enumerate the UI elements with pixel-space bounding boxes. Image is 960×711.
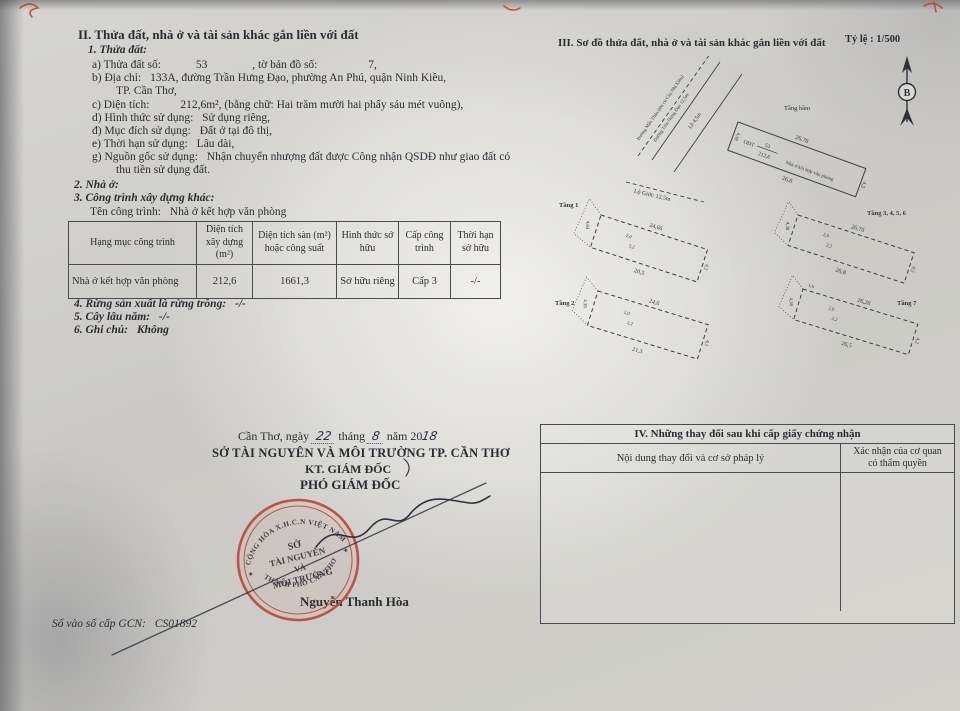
col-hang-muc: Hạng mục công trình	[69, 222, 197, 265]
floor-1-dim-bottom: 20,5	[633, 268, 645, 277]
col-thoi-han: Thời hạn sở hữu	[451, 222, 501, 265]
item-dd-value: Đất ở tại đô thị,	[200, 125, 272, 137]
date-month-label: tháng	[338, 429, 365, 443]
red-mark-top-right-icon	[924, 2, 942, 12]
scanned-land-certificate-page: II. Thửa đất, nhà ở và tài sản khác gắn …	[0, 0, 960, 711]
floor-plan-tang-2: 24,6 2,0 2,2 21,3 4,2 4,38	[566, 276, 717, 373]
site-dim-right: 4,2	[859, 180, 867, 189]
floor-1-dim-left: 4,64	[584, 221, 589, 230]
col-cap-cong-trinh: Cấp công trình	[399, 222, 451, 265]
parcel-item-b: b) Địa chỉ: 133A, đường Trần Hưng Đạo, p…	[92, 72, 446, 84]
pen-bracket-stroke	[404, 459, 409, 476]
item-c-value: 212,6m², (bằng chữ: Hai trăm mười hai ph…	[180, 99, 463, 111]
section-iv-header-row: Nội dung thay đổi và cơ sở pháp lý Xác n…	[541, 444, 954, 473]
date-year-label: năm 20	[387, 429, 423, 443]
road-name-line2: Đường Trần Hưng Đạo 12,5m	[653, 93, 691, 144]
section-iv-empty-body	[541, 473, 954, 611]
perennial-line: 5. Cây lâu năm: -/-	[74, 311, 170, 323]
section-iv-col2-header: Xác nhận của cơ quan có thẩm quyền	[841, 444, 954, 472]
floor-3456-label: Tầng 3, 4, 5, 6	[867, 210, 907, 217]
item-c-label: c) Diện tích:	[92, 99, 149, 111]
floor-1-jog2: 2,2	[628, 244, 636, 251]
floor-7-dim-left: 4,38	[788, 297, 793, 306]
red-mark-top-center-icon	[504, 6, 520, 10]
parcel-item-dd: đ) Mục đích sử dụng: Đất ở tại đô thị,	[92, 125, 272, 137]
basement-label: Tầng hầm	[784, 105, 810, 112]
construction-name-line: Tên công trình: Nhà ở kết hợp văn phòng	[90, 206, 286, 218]
section-ii-title: II. Thửa đất, nhà ở và tài sản khác gắn …	[78, 27, 359, 43]
red-mark-top-left-icon	[20, 4, 38, 17]
item-g-value: Nhận chuyển nhượng đất được Công nhận QS…	[207, 151, 510, 163]
floor-2-label: Tầng 2	[555, 300, 574, 307]
floor-2-dim-top: 24,6	[648, 298, 660, 307]
cell-thoi-han: -/-	[451, 264, 501, 298]
item-e-value: Lâu dài,	[197, 138, 235, 150]
floor-plan-tang-1: 24,66 2,0 2,2 20,5 4,2 4,64	[568, 197, 717, 295]
house-heading: 2. Nhà ở:	[74, 179, 119, 191]
floor-2-dim-right: 4,2	[703, 339, 710, 347]
note-value: Không	[137, 324, 169, 336]
floor-7-label: Tầng 7	[897, 300, 917, 307]
date-month-handwritten: 8	[367, 429, 385, 444]
cell-cap: Cấp 3	[399, 264, 451, 298]
item-a-label2: , tờ bản đồ số:	[252, 59, 317, 71]
section-iii-title: III. Sơ đồ thửa đất, nhà ở và tài sản kh…	[558, 37, 826, 49]
parcel-use-code: ODT	[742, 139, 755, 149]
gcn-number: CS01892	[155, 618, 197, 630]
construction-heading: 3. Công trình xây dựng khác:	[74, 192, 214, 204]
floor-1-jog1: 2,0	[625, 234, 633, 241]
col2-line2: có thẩm quyền	[868, 458, 927, 470]
parcel-item-g: g) Nguồn gốc sử dụng: Nhận chuyển nhượng…	[92, 151, 510, 163]
parcel-item-c: c) Diện tích: 212,6m², (bằng chữ: Hai tr…	[92, 99, 463, 111]
floor-3456-dim-bottom: 26,8	[835, 267, 847, 276]
note-label: 6. Ghi chú:	[74, 324, 128, 336]
col-dt-xay-dung: Diện tích xây dựng (m²)	[197, 222, 253, 265]
parcel-item-a: a) Thửa đất số: 53 , tờ bản đồ số: 7,	[92, 59, 377, 71]
section-iv-table: IV. Những thay đổi sau khi cấp giấy chứn…	[540, 424, 955, 624]
gcn-registry-line: Số vào sổ cấp GCN: CS01892	[52, 618, 197, 630]
floor-7-extra-dim: 1,6	[807, 283, 815, 290]
floor-2-dim-left: 4,38	[582, 299, 587, 308]
perennial-label: 5. Cây lâu năm:	[74, 311, 150, 323]
floor-3456-jog2: 2,2	[825, 243, 833, 250]
cell-hinh-thuc: Sở hữu riêng	[337, 264, 399, 298]
issuing-department: SỞ TÀI NGUYÊN VÀ MÔI TRƯỜNG TP. CẦN THƠ	[212, 446, 510, 461]
parcel-area: 212,6	[757, 151, 771, 161]
sidewalk-label: Lề 4,5m	[687, 111, 704, 131]
floor-plans-diagram: Tầng 1 24,66 2,0 2,2 20,5 4,2 4,64 Tầng …	[545, 193, 960, 403]
gcn-label: Số vào sổ cấp GCN:	[52, 618, 146, 630]
map-scale: Tỷ lệ : 1/500	[845, 34, 900, 45]
floor-7-dim-bottom: 26,5	[841, 341, 853, 350]
perennial-value: -/-	[159, 311, 170, 323]
item-d-label: d) Hình thức sử dụng:	[92, 112, 193, 124]
item-b-value: 133A, đường Trần Hưng Đạo, phường An Phú…	[150, 72, 446, 84]
site-dim-bottom: 26,8	[781, 176, 793, 185]
parcel-item-d: d) Hình thức sử dụng: Sử dụng riêng,	[92, 112, 270, 124]
parcel-item-b-cont: TP. Cần Thơ,	[116, 85, 177, 97]
site-plan-diagram: Đường Mậu Thân (tên cũ Cầu Nhị Kiều) Đườ…	[608, 56, 960, 208]
forest-line: 4. Rừng sản xuất là rừng trồng: -/-	[74, 298, 246, 310]
floor-plan-tang-7: 1,6 26,26 2,0 2,2 26,5 4,2 4,38	[773, 274, 926, 368]
item-e-label: e) Thời hạn sử dụng:	[92, 138, 188, 150]
parcel-heading: 1. Thửa đất:	[88, 44, 147, 56]
item-b-label: b) Địa chỉ:	[92, 72, 141, 84]
col2-line1: Xác nhận của cơ quan	[853, 446, 942, 458]
section-iv-title: IV. Những thay đổi sau khi cấp giấy chứn…	[541, 425, 954, 444]
floor-1-label: Tầng 1	[559, 202, 578, 209]
floor-7-jog1: 2,0	[828, 306, 836, 313]
floor-2-jog2: 2,2	[626, 321, 634, 328]
parcel-item-g-cont: thu tiền sử dụng đất.	[116, 164, 210, 176]
floor-2-jog1: 2,0	[623, 311, 631, 318]
floor-3456-jog1: 2,0	[822, 233, 830, 240]
col-hinh-thuc: Hình thức sở hữu	[337, 222, 399, 265]
date-year-handwritten: 18	[421, 429, 439, 443]
item-a-label: a) Thửa đất số:	[92, 59, 161, 71]
cell-hang-muc: Nhà ở kết hợp văn phòng	[69, 264, 197, 298]
item-d-value: Sử dụng riêng,	[202, 112, 270, 124]
section-iv-col1-header: Nội dung thay đổi và cơ sở pháp lý	[541, 444, 841, 472]
date-place: Cần Thơ, ngày	[238, 429, 309, 443]
signer-title: PHÓ GIÁM ĐỐC	[300, 477, 400, 493]
construction-name-label: Tên công trình:	[90, 206, 161, 218]
item-a-value2: 7,	[368, 59, 377, 71]
date-day-handwritten: 22	[311, 429, 337, 444]
cell-dt-xay-dung: 212,6	[197, 264, 253, 298]
floor-2-dim-bottom: 21,3	[631, 347, 643, 356]
forest-value: -/-	[235, 298, 246, 310]
construction-table: Hạng mục công trình Diện tích xây dựng (…	[68, 221, 501, 299]
cell-dt-san: 1661,3	[253, 264, 337, 298]
date-line: Cần Thơ, ngày 22 tháng 8 năm 2018	[238, 429, 438, 444]
floor-3456-dim-left: 4,38	[784, 222, 789, 231]
official-red-stamp: CỘNG HÒA X.H.C.N VIỆT NAM THÀNH PHỐ CẦN …	[230, 492, 366, 628]
col-dt-san: Diện tích sàn (m²) hoặc công suất	[253, 222, 337, 265]
on-behalf-line: KT. GIÁM ĐỐC	[305, 462, 391, 477]
construction-table-row: Nhà ở kết hợp văn phòng 212,6 1661,3 Sở …	[69, 264, 501, 298]
parcel-number: 53	[764, 143, 771, 151]
floor-7-jog2: 2,2	[831, 317, 839, 324]
construction-name-value: Nhà ở kết hợp văn phòng	[170, 206, 287, 218]
note-line: 6. Ghi chú: Không	[74, 324, 169, 336]
forest-label: 4. Rừng sản xuất là rừng trồng:	[74, 298, 226, 310]
parcel-item-e: e) Thời hạn sử dụng: Lâu dài,	[92, 138, 234, 150]
item-a-value: 53	[196, 59, 208, 71]
construction-table-header-row: Hạng mục công trình Diện tích xây dựng (…	[69, 222, 501, 265]
item-g-label: g) Nguồn gốc sử dụng:	[92, 151, 198, 163]
item-dd-label: đ) Mục đích sử dụng:	[92, 125, 191, 137]
